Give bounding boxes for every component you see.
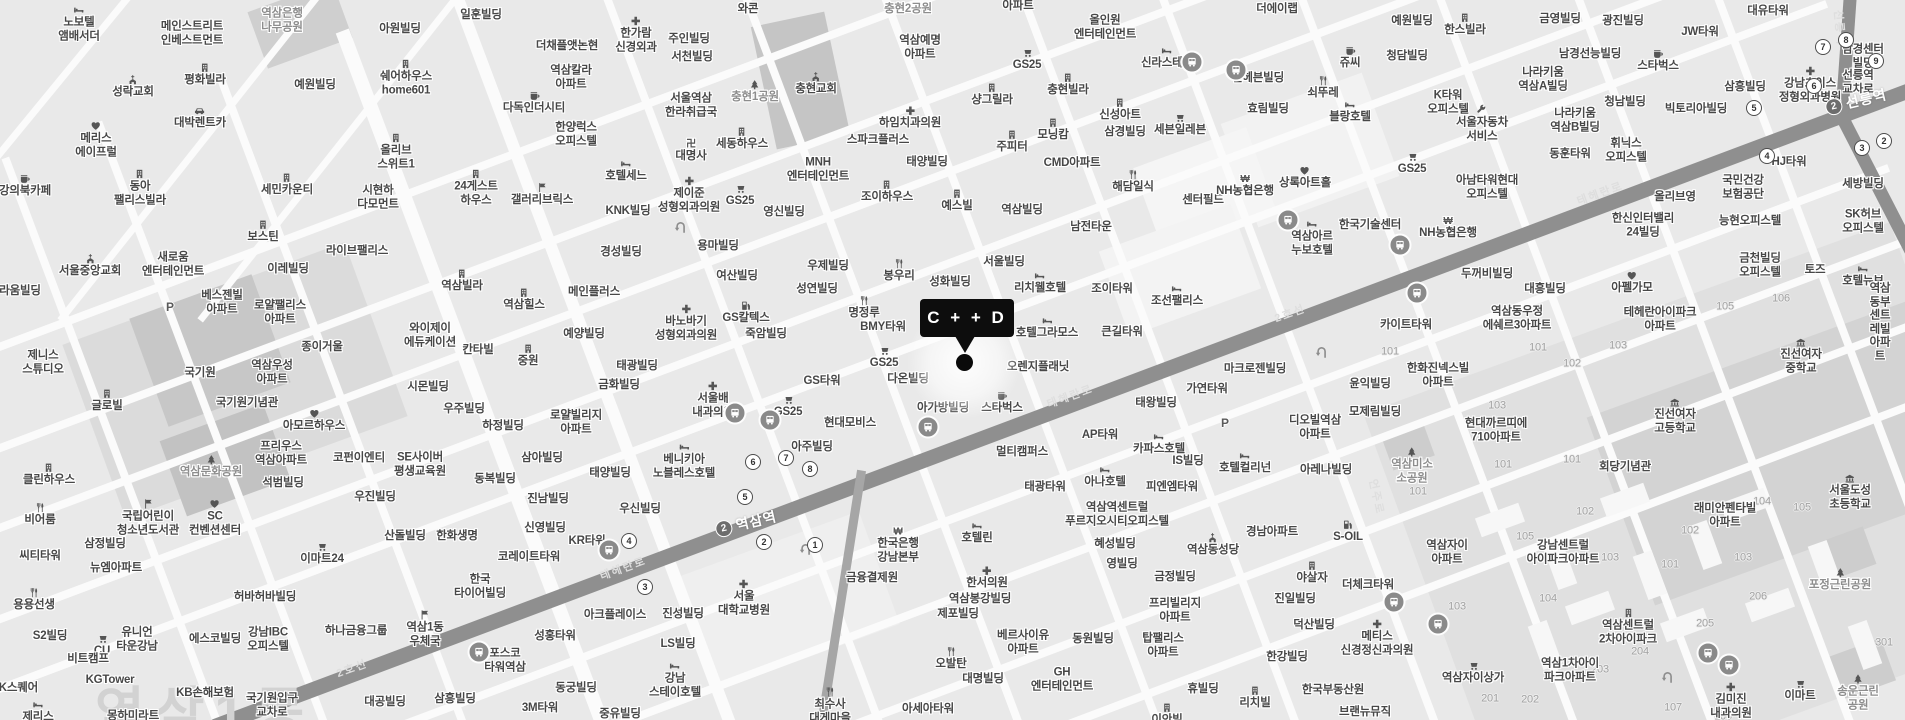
map-label: 광진빌딩 xyxy=(1602,15,1644,29)
bed-icon xyxy=(1042,315,1053,326)
map-label: 한가람 신경외과 xyxy=(615,15,657,54)
map-label-text: 서울중앙교회 xyxy=(59,265,121,277)
map-label-text: 역삼힐스 xyxy=(503,299,545,311)
map-label-text: 글로빌 xyxy=(91,400,122,412)
map-label: 우진빌딩 xyxy=(354,491,396,505)
map-label-text: 성홍타워 xyxy=(534,630,576,642)
map-label: 성연빌딩 xyxy=(796,283,838,297)
bed-icon xyxy=(1035,270,1046,281)
bldg-icon xyxy=(1161,702,1172,713)
map-label-text: CMD아파트 xyxy=(1044,157,1101,169)
map-label-text: 비트캠프 xyxy=(67,653,109,665)
cross-icon xyxy=(631,15,642,26)
building-number: 101 xyxy=(1563,454,1581,467)
map-label: 청남빌딩 xyxy=(1604,96,1646,110)
map-label: 삼정빌딩 xyxy=(84,538,126,552)
map-label-text: 쥬씨 xyxy=(1340,57,1361,69)
map-label-text: 충현2공원 xyxy=(884,3,932,15)
map-label: 국기원입구 교차로 xyxy=(246,692,298,719)
coffee-icon xyxy=(529,90,540,101)
map-label: 프리빌리지 아파트 xyxy=(1149,597,1201,624)
heart-icon xyxy=(1300,165,1311,176)
building-number: 101 xyxy=(1494,459,1512,472)
church-icon xyxy=(1208,532,1219,543)
map-label: 한화생명 xyxy=(436,530,478,544)
map-label-text: 삼흥빌딩 xyxy=(434,693,476,705)
map-label-text: 우신빌딩 xyxy=(619,503,661,515)
map-label-text: 성화빌딩 xyxy=(929,276,971,288)
map-label: 회당기념관 xyxy=(1599,461,1651,475)
map-label-text: 금융결제원 xyxy=(846,572,898,584)
map-label-text: 제니스 스튜디오 xyxy=(22,349,64,375)
map-label-text: 강남 스테이호텔 xyxy=(649,672,701,698)
map-label-text: 역삼문화공원 xyxy=(180,466,242,478)
map-label: GS25 xyxy=(1398,151,1427,177)
map-label: BMY타워 xyxy=(860,321,906,335)
map-label-text: 금정빌딩 xyxy=(1154,571,1196,583)
map-label: 일훈빌딩 xyxy=(460,9,502,23)
map-label-text: 조이하우스 xyxy=(861,191,913,203)
map-label-text: 삼아빌딩 xyxy=(521,452,563,464)
map-label-text: 아남타워현대 오피스텔 xyxy=(1456,174,1518,200)
map-label-text: 리치빌 xyxy=(1239,697,1270,709)
map-label-text: 역삼미소 소공원 xyxy=(1391,458,1433,484)
map-label-text: MNH 엔터테인먼트 xyxy=(787,156,849,182)
map-label-text: 베니키아 노블레스호텔 xyxy=(653,453,715,479)
map-label: 쥬씨 xyxy=(1340,45,1361,71)
map-label: 스타벅스 xyxy=(1637,48,1679,74)
map-label-text: 코펀이엔티 xyxy=(333,452,385,464)
map-label: 탑팰리스 아파트 xyxy=(1142,632,1184,659)
map-label-text: S-OIL xyxy=(1333,531,1363,543)
building-number: 204 xyxy=(1631,646,1649,659)
map-label-text: 아파트 xyxy=(1002,0,1033,12)
building-number: 103 xyxy=(1448,601,1466,614)
map-label-text: 와이제이 에듀케이션 xyxy=(404,322,456,348)
map-label-text: 역삼동우정 에쉐르3아파트 xyxy=(1483,305,1551,331)
map-label: 한화진넥스빌 아파트 xyxy=(1407,362,1469,389)
bldg-icon xyxy=(1622,607,1633,618)
map-label-text: 휘닉스 오피스텔 xyxy=(1605,137,1647,163)
map-label: 아펠가모 xyxy=(1611,270,1653,296)
marker-dot-icon[interactable] xyxy=(956,354,973,371)
map-label: 충현1공원 xyxy=(731,79,779,105)
map-label-text: 서천빌딩 xyxy=(671,51,713,63)
bed-icon xyxy=(32,699,43,710)
subway-exit-badge: 4 xyxy=(621,533,637,549)
bldg-icon xyxy=(519,287,530,298)
map-label-text: 24게스트 하우스 xyxy=(454,180,498,206)
map-label: 충현2공원 xyxy=(884,3,932,17)
map-label-text: KGTower xyxy=(86,674,135,686)
map-label-text: 주인빌딩 xyxy=(668,33,710,45)
map-label: 씨티타워 xyxy=(19,550,61,564)
cart-icon xyxy=(317,541,328,552)
map-label: ₩한국은행 강남본부 xyxy=(877,527,919,564)
map-label-text: 브랜뉴뮤직 xyxy=(1339,706,1391,718)
map-label: 예양빌딩 xyxy=(563,328,605,342)
map-label-text: 로얄빌리지 아파트 xyxy=(550,409,602,435)
map-label-text: 가연타워 xyxy=(1186,383,1228,395)
map-label: 나라키움 역삼B빌딩 xyxy=(1550,107,1600,134)
map-label-text: 동궁빌딩 xyxy=(555,682,597,694)
bus-icon xyxy=(1231,65,1242,76)
map-label: 더체크타워 xyxy=(1342,579,1394,593)
map-label-text: 여산빌딩 xyxy=(716,270,758,282)
map-label: 세븐일레븐 xyxy=(1154,112,1206,138)
map-label-text: 호텔그라모스 xyxy=(1016,327,1078,339)
map-label: 조이타워 xyxy=(1091,283,1133,297)
map-label: 우신빌딩 xyxy=(619,503,661,517)
map-label-text: 상록아트홀 xyxy=(1279,177,1331,189)
map-label-text: 제리스 xyxy=(22,711,53,720)
map-label: 아파트 xyxy=(1002,0,1033,14)
subway-exit-badge: 9 xyxy=(1868,53,1884,69)
map-label: 진남빌딩 xyxy=(527,493,569,507)
map-label-text: 호텔린 xyxy=(961,532,992,544)
map-label: 능현오피스텔 xyxy=(1719,215,1781,229)
map-label-text: 진성빌딩 xyxy=(662,608,704,620)
map-label-text: SC 컨벤션센터 xyxy=(189,510,241,536)
map-label: KNK빌딩 xyxy=(605,205,650,219)
map-label-text: 제이준 성형외과의원 xyxy=(658,187,720,213)
map-label-text: 역삼1차아이 파크아파트 xyxy=(1541,657,1599,683)
map-label: 금영빌딩 xyxy=(1539,13,1581,27)
map-label-text: 비어룸 xyxy=(24,514,55,526)
map-label: 경남아파트 xyxy=(1246,526,1298,540)
map-label-text: 포정근린공원 xyxy=(1809,579,1871,591)
map-label: 메인플러스 xyxy=(568,286,620,300)
map-label: 최수사 대게마을 xyxy=(809,686,851,720)
map-label-text: 신영빌딩 xyxy=(524,522,566,534)
map-label: IS빌딩 xyxy=(1172,455,1203,469)
map-label-text: 리치웰호텔 xyxy=(1014,282,1066,294)
map-label-text: 메인스트리트 인베스트먼트 xyxy=(161,20,223,46)
bldg-icon xyxy=(257,219,268,230)
map-label-text: NH농협은행 xyxy=(1419,227,1477,239)
map-label: 경성빌딩 xyxy=(600,246,642,260)
map-label: 역삼문화공원 xyxy=(180,454,242,480)
map-label: 삼경빌딩 xyxy=(1104,126,1146,140)
marker-label: C + + D xyxy=(927,308,1007,328)
map-label-text: 올인원 엔터테인먼트 xyxy=(1074,14,1136,40)
map-label: 아나호텔 xyxy=(1084,464,1126,490)
map-label-text: 이레빌딩 xyxy=(267,263,309,275)
map-label: 휘닉스 오피스텔 xyxy=(1605,137,1647,164)
cross-icon xyxy=(1371,618,1382,629)
map-label: 오발탄 xyxy=(935,646,966,672)
map-label-text: 하나금융그룹 xyxy=(325,625,387,637)
building-number: 104 xyxy=(1539,593,1557,606)
map-label-text: 신성아트 xyxy=(1099,109,1141,121)
map-label: 하정빌딩 xyxy=(482,420,524,434)
map-label-text: 큰길타워 xyxy=(1101,326,1143,338)
map-label: 휴빌딩 xyxy=(1187,683,1218,697)
map-label-text: 세민카운티 xyxy=(261,184,313,196)
map-label-text: 프리우스 역삼아파트 xyxy=(255,440,307,466)
bus-stop-icon xyxy=(1427,613,1450,636)
map-label: 프리우스 역삼아파트 xyxy=(255,440,307,467)
map-label: 한양럭스 오피스텔 xyxy=(555,121,597,148)
map-label: 이레빌딩 xyxy=(267,263,309,277)
map-label-text: 현대까르띠에 710아파트 xyxy=(1465,417,1527,443)
map-label: LS빌딩 xyxy=(660,638,695,652)
map-label: 삼아빌딩 xyxy=(521,452,563,466)
map-label: 송운근린공원 xyxy=(1835,673,1882,712)
map-label-text: 남경선능빌딩 xyxy=(1559,48,1621,60)
map-label-text: 한스빌라 xyxy=(1444,24,1486,36)
map-label: 태광타워 xyxy=(1024,481,1066,495)
map-label: 로얄빌리지 아파트 xyxy=(550,409,602,436)
bed-icon xyxy=(74,4,85,15)
map-label: ₩NH농협은행 xyxy=(1216,175,1274,199)
map-label-text: 역삼센트럴 2차아이파크 xyxy=(1599,619,1657,645)
cross-icon xyxy=(905,105,916,116)
map-label: 큰길타워 xyxy=(1101,326,1143,340)
map-label: 역삼자이 아파트 xyxy=(1426,539,1468,566)
map-label-text: 평화빌라 xyxy=(184,74,226,86)
cross-icon xyxy=(684,175,695,186)
subway-exit-badge: 2 xyxy=(1876,133,1892,149)
building-number: 101 xyxy=(1409,486,1427,499)
map-label: 서울역삼 한라취급국 xyxy=(665,92,717,119)
map-label: 뉴엠아파트 xyxy=(90,562,142,576)
cross-icon xyxy=(1805,65,1816,76)
bus-stop-icon xyxy=(1181,51,1204,74)
bldg-icon xyxy=(1006,129,1017,140)
map-label-text: 죽암빌딩 xyxy=(745,328,787,340)
map-label: 서천빌딩 xyxy=(671,51,713,65)
fork-icon xyxy=(1317,75,1328,86)
bldg-icon xyxy=(282,172,293,183)
map-label: 대유타워 xyxy=(1747,5,1789,19)
map-label: 동훈타워 xyxy=(1549,148,1591,162)
marker-bubble[interactable]: C + + D xyxy=(920,299,1014,337)
subway-line-badge: 2 xyxy=(1824,96,1844,116)
map-label: 비어룸 xyxy=(24,502,55,528)
map-canvas[interactable]: 역삼1동 노보텔 앰배서더메인스트리트 인베스트먼트역삼은행 나무공원일훈빌딩아… xyxy=(0,0,1905,720)
map-label-text: GS칼텍스 xyxy=(722,312,769,324)
cart-icon xyxy=(1406,151,1417,162)
map-label-text: 대유타워 xyxy=(1747,5,1789,17)
bus-icon xyxy=(730,408,741,419)
map-label: 명정루 xyxy=(848,295,879,321)
map-label-text: 강남센트럴 아이파크아파트 xyxy=(1527,539,1600,565)
map-label-text: 한국기술센터 xyxy=(1339,219,1401,231)
fork-icon xyxy=(945,646,956,657)
map-label-text: 세븐일레븐 xyxy=(1154,124,1206,136)
map-label: 베르사이유 아파트 xyxy=(997,629,1049,656)
cart-icon xyxy=(1021,47,1032,58)
map-label-text: 스타벅스 xyxy=(1637,60,1679,72)
map-label-text: 용마빌딩 xyxy=(697,240,739,252)
map-label: 충현교회 xyxy=(795,71,837,97)
map-label-text: 더에이랩 xyxy=(1256,3,1298,15)
map-label: 용마빌딩 xyxy=(697,240,739,254)
map-label-text: 로얄팰리스 아파트 xyxy=(254,299,306,325)
map-label-text: 더채플앳논현 xyxy=(536,40,598,52)
map-label: 청담빌딩 xyxy=(1386,50,1428,64)
map-label-text: 서울자동차 서비스 xyxy=(1456,116,1508,142)
heart-icon xyxy=(309,408,320,419)
map-label: 덕산빌딩 xyxy=(1293,619,1335,633)
map-label: 현대모비스 xyxy=(824,417,876,431)
map-label: 역삼1동 우체국 xyxy=(406,609,443,648)
map-label-text: 아레나빌딩 xyxy=(1300,464,1352,476)
map-label-text: 몽하미라트 xyxy=(107,710,159,720)
map-label: 한강빌딩 xyxy=(1266,651,1308,665)
map-label-text: 이마트24 xyxy=(300,553,344,565)
bed-icon xyxy=(670,660,681,671)
map-label: 종이거울 xyxy=(301,341,343,355)
map-label-text: 경성빌딩 xyxy=(600,246,642,258)
map-label-text: 우진빌딩 xyxy=(354,491,396,503)
map-label-text: 휴빌딩 xyxy=(1187,683,1218,695)
map-label: 역삼센트럴 2차아이파크 xyxy=(1599,607,1657,646)
map-label-text: 역삼자이 아파트 xyxy=(1426,539,1468,565)
map-label-text: 광진빌딩 xyxy=(1602,15,1644,27)
cart-icon xyxy=(1468,660,1479,671)
map-label: 테헤란아이파크 아파트 xyxy=(1624,306,1697,333)
map-label: 충현빌라 xyxy=(1047,72,1089,98)
map-label-text: 라이브팰리스 xyxy=(326,245,388,257)
map-label: 한스빌라 xyxy=(1444,12,1486,38)
map-label: 래미안펜타빌 아파트 xyxy=(1694,502,1756,529)
cross-icon xyxy=(708,380,719,391)
map-label-text: 하정빌딩 xyxy=(482,420,524,432)
map-label-text: 뉴엠아파트 xyxy=(90,562,142,574)
map-label: 와이제이 에듀케이션 xyxy=(404,322,456,349)
map-label-text: 역삼역센트럴 푸르지오시티오피스텔 xyxy=(1065,501,1169,527)
map-label-text: 더체크타워 xyxy=(1342,579,1394,591)
map-label: GH 엔터테인먼트 xyxy=(1031,666,1093,693)
map-label: 영빌딩 xyxy=(1106,558,1137,572)
map-label-text: 역삼1동 우체국 xyxy=(406,621,443,647)
building-number: 102 xyxy=(1576,506,1594,519)
coffee-icon xyxy=(1653,48,1664,59)
map-label-text: 남전타운 xyxy=(1070,221,1112,233)
map-label-text: 동복빌딩 xyxy=(474,473,516,485)
map-label-text: 강의북카페 xyxy=(0,185,51,197)
map-label: 리치빌 xyxy=(1239,685,1270,711)
bus-icon xyxy=(1389,597,1400,608)
station-name: 역삼역 xyxy=(734,506,779,535)
map-label: 대명빌딩 xyxy=(962,673,1004,687)
map-label: 진성빌딩 xyxy=(662,608,704,622)
map-label: KB손해보험 xyxy=(176,687,234,701)
map-label-text: GS타워 xyxy=(804,375,841,387)
map-label-text: 3M타워 xyxy=(522,702,558,714)
bed-icon xyxy=(1162,45,1173,56)
map-label: 상록아트홀 xyxy=(1279,165,1331,191)
map-label: 아레나빌딩 xyxy=(1300,464,1352,478)
map-label: 효림빌딩 xyxy=(1247,103,1289,117)
map-label: 올리브영 xyxy=(1654,191,1696,205)
map-label: AP타워 xyxy=(1082,429,1118,443)
map-label-text: 라움빌딩 xyxy=(0,285,41,297)
map-label-text: 한국부동산원 xyxy=(1302,684,1364,696)
map-label: 야살자 xyxy=(1296,560,1327,586)
map-label: 아남타워현대 오피스텔 xyxy=(1456,174,1518,201)
map-label-text: 회당기념관 xyxy=(1599,461,1651,473)
map-label-text: 역삼빌라 xyxy=(441,280,483,292)
map-label: 조선팰리스 xyxy=(1151,283,1203,309)
map-label: 한국 타이어빌딩 xyxy=(454,573,506,600)
subway-exit-badge: 6 xyxy=(1806,78,1822,94)
car-icon xyxy=(195,105,206,116)
map-label-text: 예원빌딩 xyxy=(1391,15,1433,27)
map-label-text: 성연빌딩 xyxy=(796,283,838,295)
map-label: 삼흥빌딩 xyxy=(434,693,476,707)
bus-stop-icon xyxy=(724,402,747,425)
map-label: 카이트타워 xyxy=(1380,319,1432,333)
map-label: 서울도성 초등학교 xyxy=(1829,472,1871,511)
map-label: 주피터 xyxy=(996,129,1027,155)
map-label: 동원빌딩 xyxy=(1072,633,1114,647)
bus-stop-icon xyxy=(917,416,940,439)
map-label: 코레이트타워 xyxy=(498,551,560,565)
map-label: 스파크플러스 xyxy=(847,134,909,148)
map-label-text: 한국 타이어빌딩 xyxy=(454,573,506,599)
map-label-text: 역삼동부 센트레빌아파트 xyxy=(1870,282,1891,362)
map-label: 혜성빌딩 xyxy=(1094,538,1136,552)
building-number: 103 xyxy=(1734,552,1752,565)
map-label-text: 한양럭스 오피스텔 xyxy=(555,121,597,147)
building-number: 103 xyxy=(1488,400,1506,413)
bldg-icon xyxy=(737,126,748,137)
map-label-text: 아원빌딩 xyxy=(379,23,421,35)
building-number: 301 xyxy=(1875,637,1893,650)
map-label: 제리스 xyxy=(22,699,53,720)
map-label: 강남IBC 오피스텔 xyxy=(247,626,289,653)
map-label-text: 탑팰리스 아파트 xyxy=(1142,632,1184,658)
map-label-text: 에스코빌딩 xyxy=(189,633,241,645)
building-number: 107 xyxy=(1664,702,1682,715)
map-label: 강의북카페 xyxy=(0,173,51,199)
map-label: 강남 스테이호텔 xyxy=(649,660,701,699)
map-label-text: GS25 xyxy=(870,357,899,369)
map-label-text: 한강빌딩 xyxy=(1266,651,1308,663)
marker-tail-icon xyxy=(955,336,975,353)
map-label-text: 바노바기 성형외과의원 xyxy=(655,315,717,341)
map-label-text: 동원빌딩 xyxy=(1072,633,1114,645)
map-label: 대공빌딩 xyxy=(364,696,406,710)
map-label: 국립어린이 청소년도서관 xyxy=(117,498,179,537)
subway-exit-badge: 8 xyxy=(802,461,818,477)
map-label: 신성아트 xyxy=(1099,97,1141,123)
map-label: 3M타워 xyxy=(522,702,558,716)
flag-icon xyxy=(420,609,431,620)
map-label: 호텔그라모스 xyxy=(1016,315,1078,341)
map-label-text: 블랑호텔 xyxy=(1329,111,1371,123)
map-label-text: 보스틴 xyxy=(247,231,278,243)
map-label: 역삼동우정 에쉐르3아파트 xyxy=(1483,305,1551,332)
bldg-icon xyxy=(391,132,402,143)
subway-exit-badge: 7 xyxy=(778,450,794,466)
map-label-text: 조선팰리스 xyxy=(1151,295,1203,307)
map-label: GS25 xyxy=(726,183,755,209)
map-label-text: 최수사 대게마을 xyxy=(809,698,851,720)
map-label: 메인스트리트 인베스트먼트 xyxy=(161,20,223,47)
bldg-icon xyxy=(1047,117,1058,128)
map-label: GS칼텍스 xyxy=(722,300,769,326)
map-label-text: 동아 팰리스빌라 xyxy=(114,180,166,206)
bldg-icon xyxy=(1115,97,1126,108)
map-label-text: LS빌딩 xyxy=(660,638,695,650)
map-label: 삼흥빌딩 xyxy=(1724,81,1766,95)
map-label: 역삼동성당 xyxy=(1187,532,1239,558)
map-label-text: 충현교회 xyxy=(795,83,837,95)
